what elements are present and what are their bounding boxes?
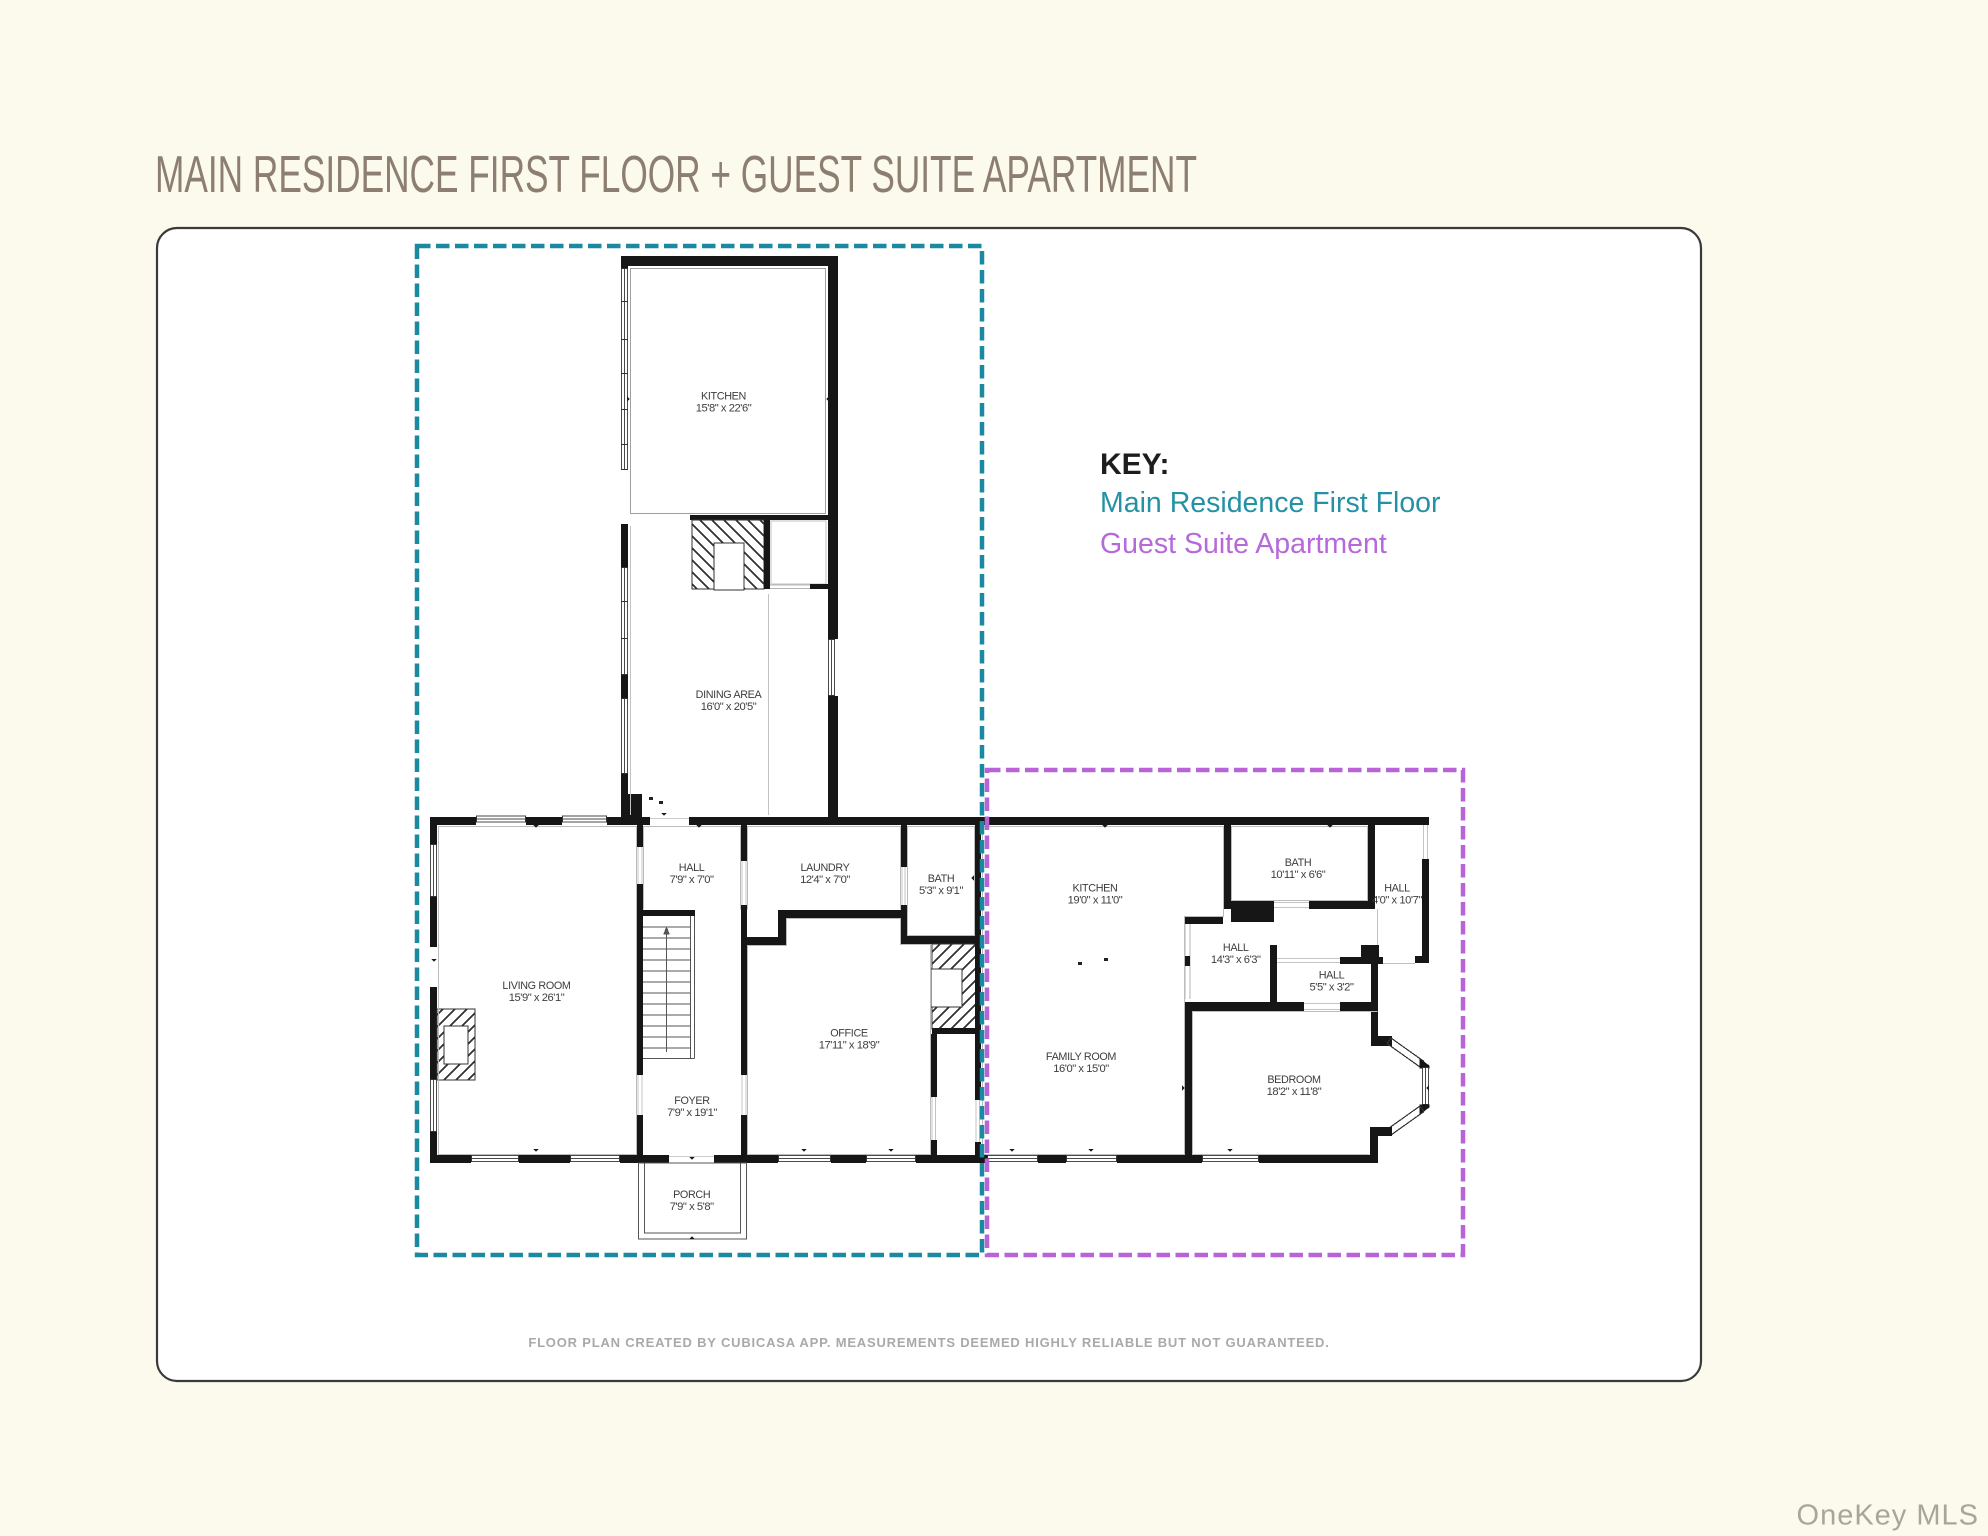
svg-text:DINING AREA: DINING AREA: [696, 689, 763, 701]
svg-text:FLOOR PLAN CREATED BY CUBICASA: FLOOR PLAN CREATED BY CUBICASA APP. MEAS…: [528, 1335, 1329, 1350]
svg-text:4'0" x 10'7": 4'0" x 10'7": [1372, 895, 1422, 907]
svg-text:7'9" x 19'1": 7'9" x 19'1": [667, 1107, 717, 1119]
svg-text:OFFICE: OFFICE: [830, 1028, 868, 1040]
svg-text:14'3" x 6'3": 14'3" x 6'3": [1211, 954, 1261, 966]
svg-text:OneKey MLS: OneKey MLS: [1797, 1500, 1979, 1532]
svg-text:16'0" x 15'0": 16'0" x 15'0": [1053, 1063, 1109, 1075]
svg-text:10'11" x 6'6": 10'11" x 6'6": [1271, 869, 1326, 881]
svg-text:BEDROOM: BEDROOM: [1267, 1074, 1321, 1086]
svg-text:Guest Suite Apartment: Guest Suite Apartment: [1100, 528, 1387, 560]
svg-text:Main Residence First Floor: Main Residence First Floor: [1100, 487, 1441, 519]
svg-text:7'9" x 7'0": 7'9" x 7'0": [670, 874, 714, 886]
svg-text:17'11" x 18'9": 17'11" x 18'9": [819, 1040, 880, 1052]
svg-text:16'0" x 20'5": 16'0" x 20'5": [701, 701, 757, 713]
svg-text:7'9" x 5'8": 7'9" x 5'8": [670, 1201, 714, 1213]
svg-text:19'0" x 11'0": 19'0" x 11'0": [1068, 895, 1123, 907]
svg-text:LAUNDRY: LAUNDRY: [801, 862, 850, 874]
svg-text:KITCHEN: KITCHEN: [701, 391, 746, 403]
svg-text:15'9" x 26'1": 15'9" x 26'1": [509, 992, 565, 1004]
svg-text:BATH: BATH: [1285, 857, 1312, 869]
svg-text:FAMILY ROOM: FAMILY ROOM: [1046, 1051, 1116, 1063]
svg-text:MAIN RESIDENCE FIRST FLOOR + G: MAIN RESIDENCE FIRST FLOOR + GUEST SUITE…: [155, 146, 1197, 204]
svg-text:HALL: HALL: [1319, 970, 1345, 982]
svg-text:12'4" x 7'0": 12'4" x 7'0": [800, 874, 850, 886]
svg-text:FOYER: FOYER: [674, 1095, 710, 1107]
svg-text:KITCHEN: KITCHEN: [1073, 883, 1118, 895]
svg-text:18'2" x 11'8": 18'2" x 11'8": [1267, 1086, 1322, 1098]
svg-text:HALL: HALL: [1223, 942, 1249, 954]
svg-text:5'3" x 9'1": 5'3" x 9'1": [919, 885, 963, 897]
svg-text:5'5" x 3'2": 5'5" x 3'2": [1310, 982, 1354, 994]
svg-text:HALL: HALL: [679, 862, 705, 874]
svg-text:HALL: HALL: [1384, 883, 1410, 895]
svg-text:BATH: BATH: [928, 873, 955, 885]
svg-text:LIVING ROOM: LIVING ROOM: [502, 980, 570, 992]
svg-text:KEY:: KEY:: [1100, 448, 1169, 481]
svg-text:15'8" x 22'6": 15'8" x 22'6": [696, 403, 752, 415]
svg-text:PORCH: PORCH: [673, 1189, 710, 1201]
